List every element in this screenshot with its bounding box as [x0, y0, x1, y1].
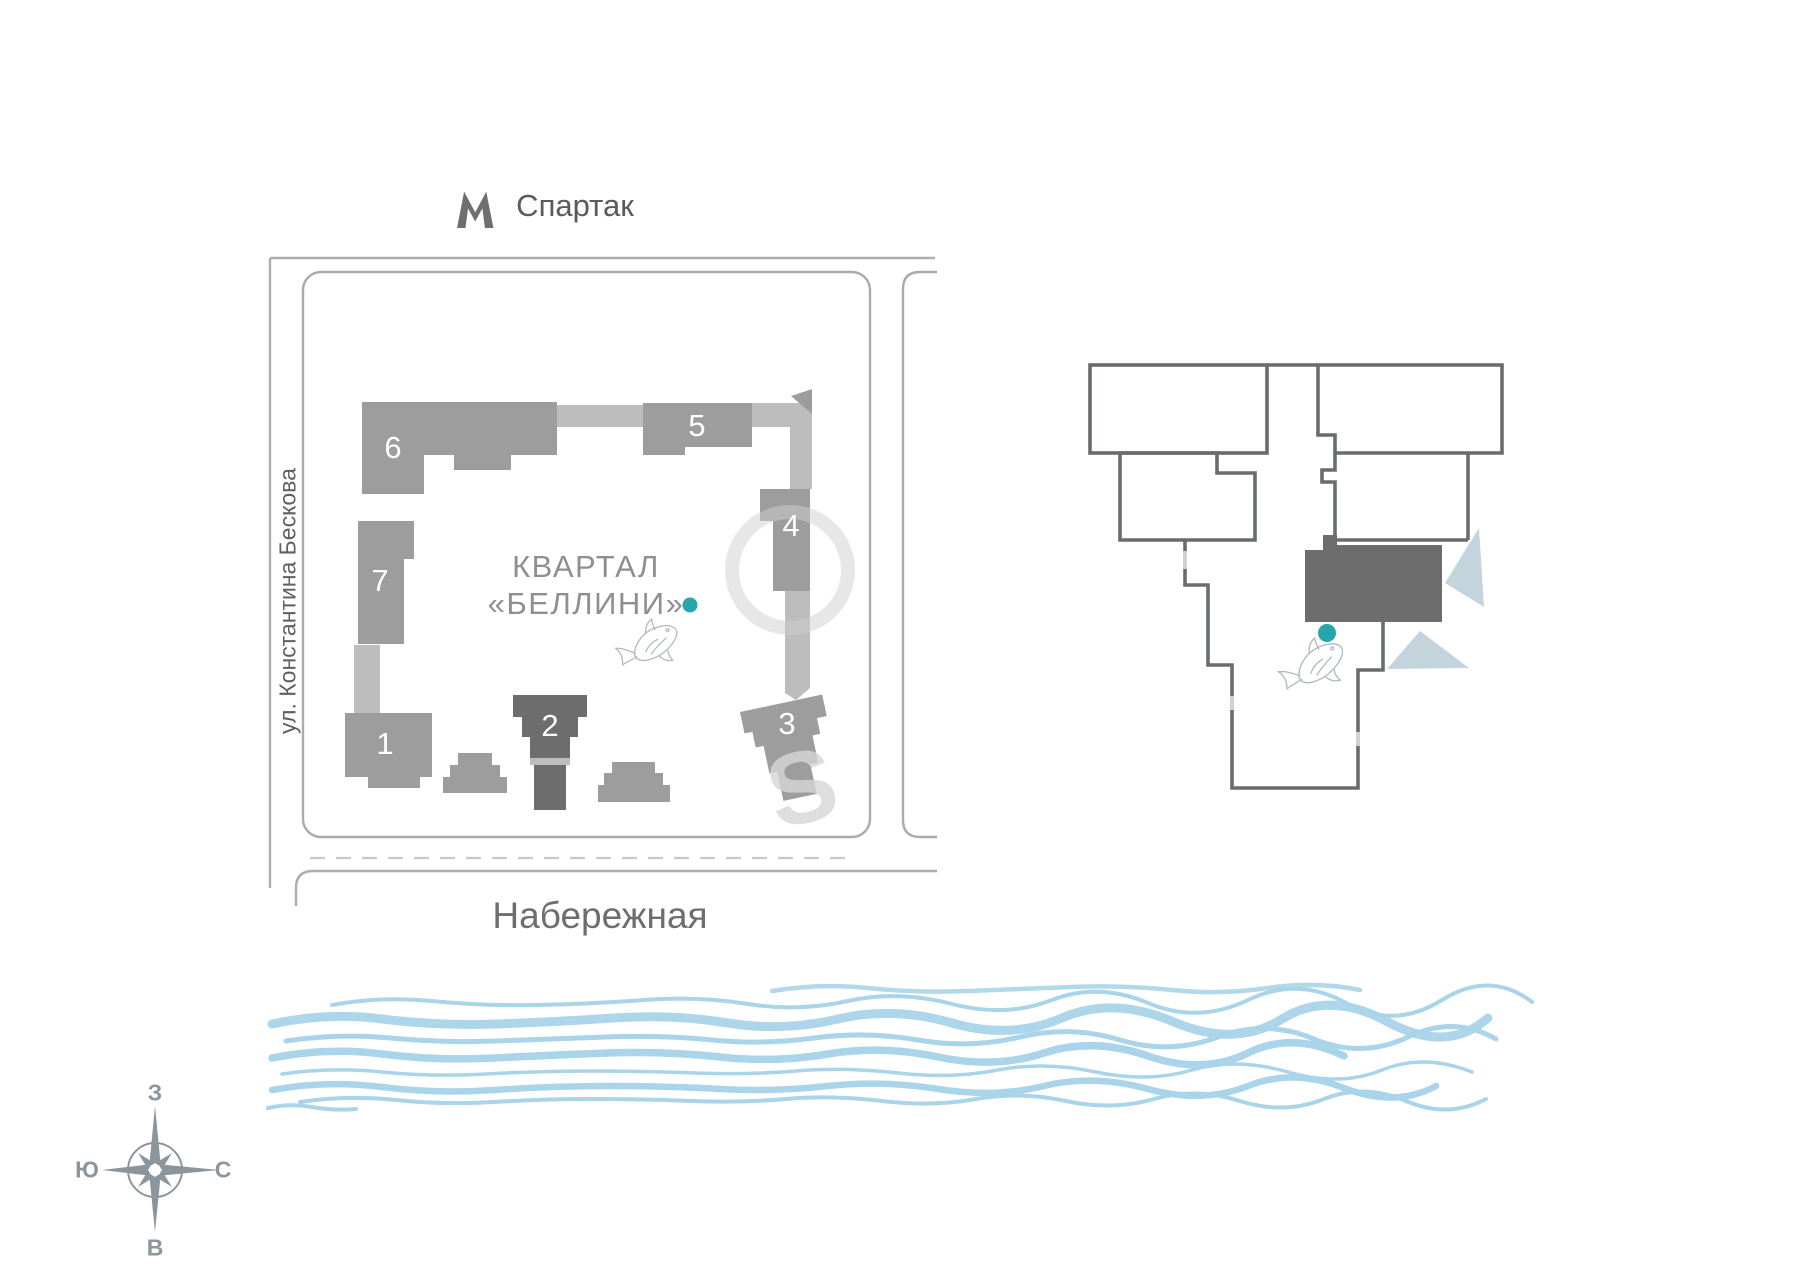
low-structure-right	[598, 762, 670, 802]
plan-decor-triangle-2	[1387, 631, 1469, 669]
building-connector-7-1	[354, 645, 380, 713]
building-2-label[interactable]: 2	[541, 708, 558, 744]
compass-label-left: Ю	[75, 1157, 99, 1184]
quarter-title-line1: КВАРТАЛ	[512, 549, 660, 585]
plan-room-mid-left	[1120, 453, 1255, 540]
building-6-label[interactable]: 6	[384, 430, 401, 466]
plan-room-top-left	[1090, 365, 1267, 453]
site-location-marker	[683, 598, 698, 613]
building-4-label[interactable]: 4	[782, 508, 799, 544]
plan-location-marker	[1318, 624, 1336, 642]
plan-room-top-right	[1318, 365, 1502, 453]
building-connector-corner	[752, 403, 812, 489]
east-block-outline	[903, 272, 937, 837]
building-1-label[interactable]: 1	[376, 726, 393, 762]
building-connector-4-3	[785, 591, 810, 700]
compass-star	[102, 1106, 219, 1232]
plan-highlighted-section[interactable]	[1305, 535, 1442, 622]
quarter-title-line2: «БЕЛЛИНИ»	[488, 586, 685, 622]
compass-label-right: С	[215, 1157, 232, 1184]
compass-label-top: З	[148, 1080, 162, 1107]
floor-plan	[1090, 365, 1502, 788]
fish-sketch-plan	[1272, 629, 1355, 706]
site-location-page: Спартак КВАРТАЛ «БЕЛЛИНИ» ул. Константин…	[0, 0, 1811, 1280]
building-5-label[interactable]: 5	[688, 408, 705, 444]
compass-label-bottom: В	[147, 1235, 164, 1262]
water-waves	[268, 985, 1532, 1110]
building-2-divider	[530, 758, 570, 765]
low-structure-left	[443, 753, 507, 793]
plan-corridor-right-wall	[1322, 453, 1335, 537]
street-label-left: ул. Константина Бескова	[275, 468, 302, 734]
building-connector-6-5	[557, 405, 643, 427]
compass-rose	[102, 1106, 219, 1232]
map-graphic	[0, 0, 1811, 1280]
metro-m-icon	[457, 192, 493, 228]
building-7-label[interactable]: 7	[371, 563, 388, 599]
metro-station-label: Спартак	[516, 188, 634, 224]
street-label-bottom: Набережная	[492, 895, 707, 937]
